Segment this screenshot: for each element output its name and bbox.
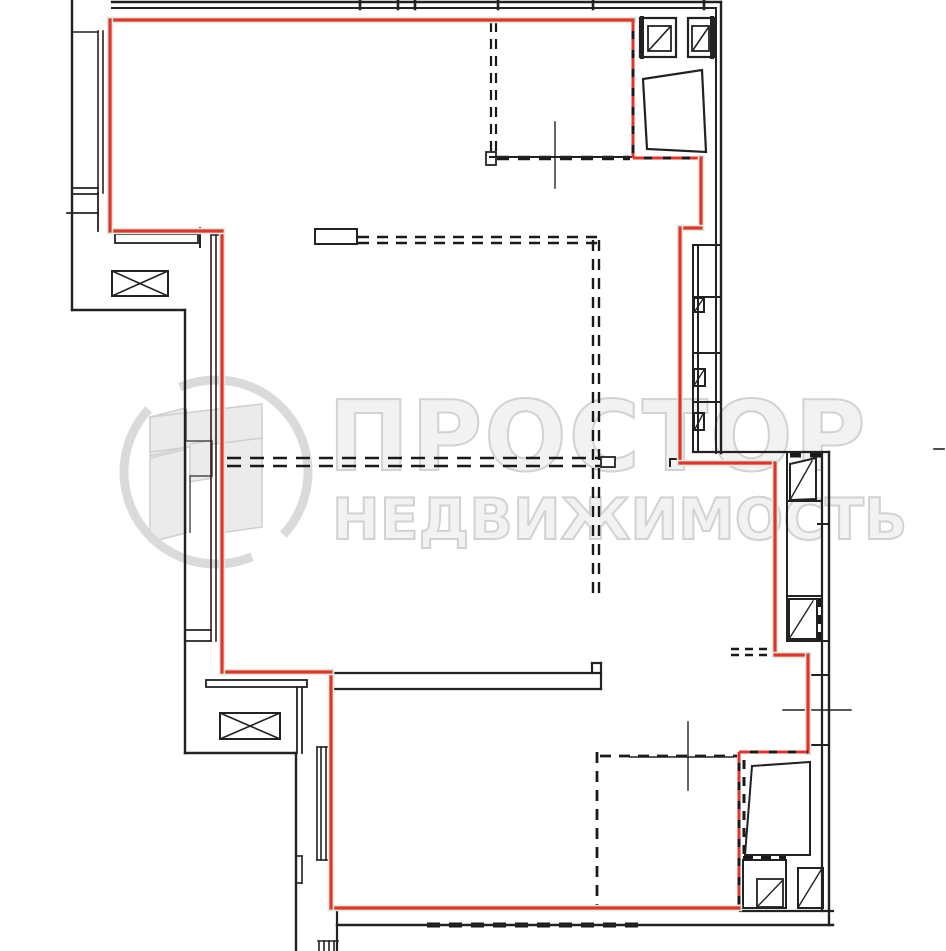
floorplan-screenshot: ПРОСТОР НЕДВИЖИМОСТЬ <box>0 0 946 951</box>
floor-plan-svg <box>0 0 946 951</box>
apartment-red-outline <box>110 20 808 908</box>
